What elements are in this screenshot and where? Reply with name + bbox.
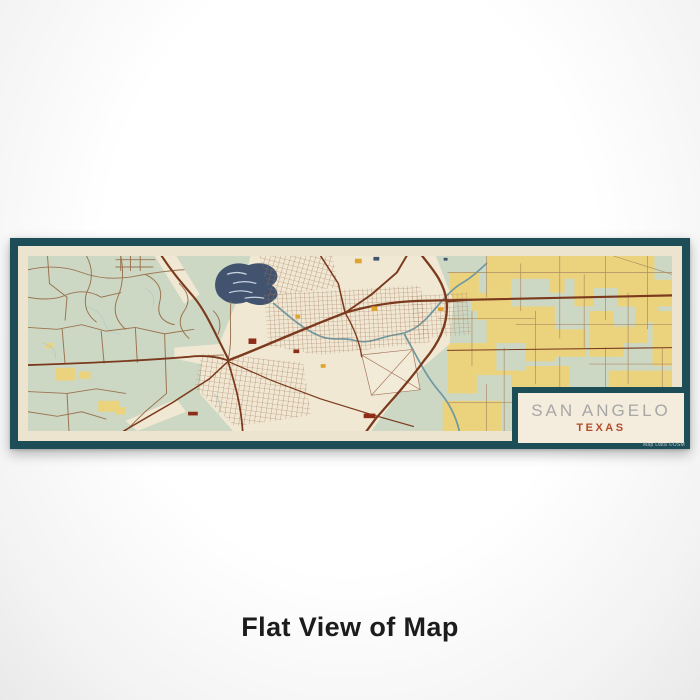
fairground-x	[362, 349, 421, 395]
product-photo-background: SAN ANGELO TEXAS Map Data ©OSM Flat View…	[0, 0, 700, 700]
map-print: SAN ANGELO TEXAS Map Data ©OSM	[10, 238, 690, 449]
map-subtitle: TEXAS	[576, 423, 625, 434]
image-caption: Flat View of Map	[0, 612, 700, 648]
map-title-plate-inner: SAN ANGELO TEXAS	[518, 393, 684, 443]
pond	[373, 257, 379, 261]
map-title-plate: SAN ANGELO TEXAS	[512, 387, 690, 449]
map-attribution: Map Data ©OSM	[643, 442, 685, 448]
map-title: SAN ANGELO	[531, 402, 671, 419]
pond	[444, 258, 448, 261]
